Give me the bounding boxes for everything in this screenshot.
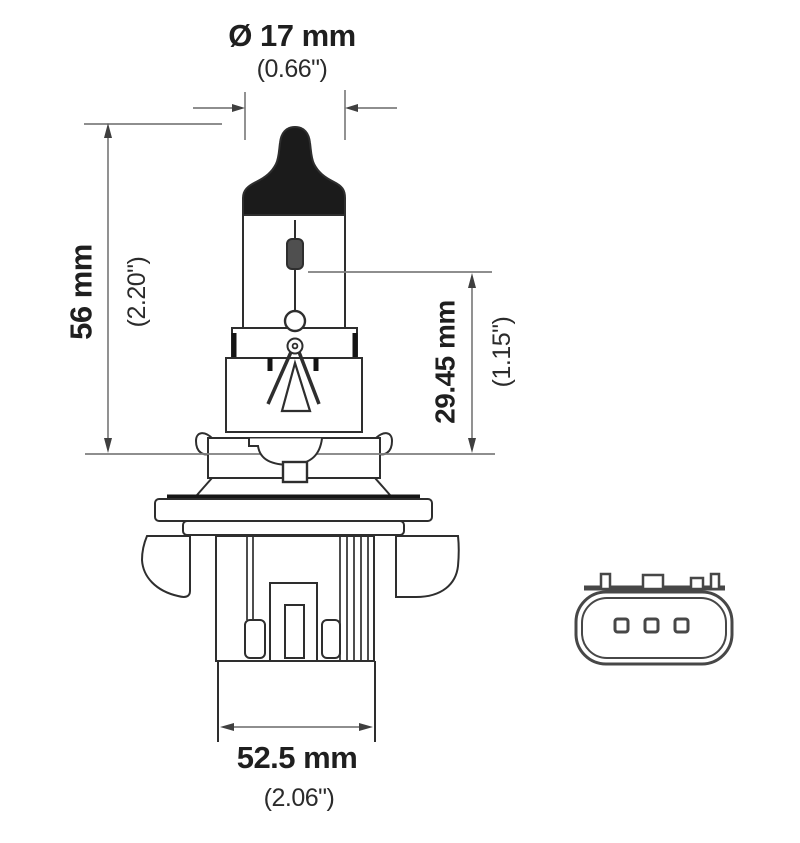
label-lcl-imperial: (1.15") <box>488 317 516 388</box>
terminal-slot <box>285 605 304 658</box>
terminal-pocket-right <box>322 620 340 658</box>
bulb-base-drawing <box>142 439 459 743</box>
connector-tab-small <box>691 578 703 589</box>
collar-flare-left <box>197 478 212 495</box>
label-lcl-metric: 29.45 mm <box>430 300 461 424</box>
arrow-up-icon <box>468 273 476 288</box>
wing-left <box>142 536 190 597</box>
terminal-pocket-left <box>245 620 265 658</box>
arrow-down-icon <box>104 438 112 453</box>
gasket-band <box>183 521 404 535</box>
strut-pivot-hole <box>293 344 298 349</box>
collar-key-block <box>283 462 307 482</box>
connector-tab-right <box>711 574 719 589</box>
arrow-left-icon <box>220 723 234 731</box>
collar-flare-right <box>375 478 390 495</box>
flange-band <box>155 499 432 521</box>
label-tip-diameter-metric: Ø 17 mm <box>228 18 355 53</box>
label-base-width-metric: 52.5 mm <box>237 740 358 775</box>
connector-tab-center <box>643 575 663 589</box>
arrow-down-icon <box>468 438 476 453</box>
arrow-up-icon <box>104 123 112 138</box>
connector-tab-left <box>601 574 610 589</box>
arrow-left-icon <box>345 104 358 112</box>
support-bead <box>285 311 305 331</box>
label-height-metric: 56 mm <box>64 244 99 340</box>
label-base-width-imperial: (2.06") <box>264 784 335 812</box>
connector-face-view <box>576 574 732 664</box>
filament-coil <box>287 239 303 269</box>
connector-shell-outer <box>576 592 732 664</box>
arrow-right-icon <box>232 104 245 112</box>
wing-right <box>396 536 459 597</box>
bulb-technical-drawing-page: Ø 17 mm (0.66") 56 mm (2.20") 29.45 mm (… <box>0 0 800 843</box>
label-height-imperial: (2.20") <box>123 257 151 328</box>
bulb-drawing <box>196 127 392 478</box>
arrow-right-icon <box>359 723 373 731</box>
black-tip-cap <box>243 127 345 215</box>
label-tip-diameter-imperial: (0.66") <box>257 55 328 83</box>
drawing-canvas: Ø 17 mm (0.66") 56 mm (2.20") 29.45 mm (… <box>0 0 800 843</box>
